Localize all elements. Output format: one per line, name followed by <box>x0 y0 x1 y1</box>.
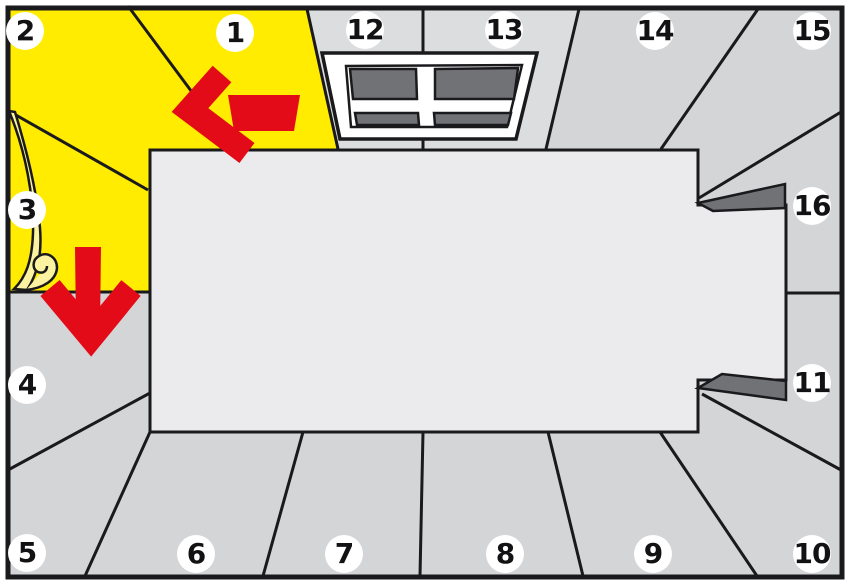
window-pane-top-left <box>350 69 417 99</box>
strip-badge-9: 9 <box>634 535 672 573</box>
strip-badge-7: 7 <box>325 535 363 573</box>
strip-badge-10: 10 <box>793 535 831 573</box>
strip-badge-1: 1 <box>216 14 254 52</box>
strip-badge-5: 5 <box>8 534 46 572</box>
wallpapering-sequence-diagram: 1 2 3 4 5 6 7 8 9 10 11 12 13 14 15 16 <box>0 0 850 585</box>
strip-badge-15: 15 <box>793 12 831 50</box>
strip-badge-11: 11 <box>793 364 831 402</box>
room-plan <box>0 0 850 585</box>
window-icon <box>322 53 537 139</box>
strip-badge-4: 4 <box>8 366 46 404</box>
strip-badge-12: 12 <box>346 11 384 49</box>
window-pane-top-right <box>435 68 518 99</box>
strip-badge-3: 3 <box>8 191 46 229</box>
window-pane-bottom-left <box>355 113 419 125</box>
window-pane-bottom-right <box>434 113 511 125</box>
strip-badge-14: 14 <box>636 12 674 50</box>
floor-area <box>150 150 786 432</box>
strip-badge-6: 6 <box>177 535 215 573</box>
strip-badge-13: 13 <box>485 11 523 49</box>
strip-badge-8: 8 <box>486 535 524 573</box>
strip-badge-2: 2 <box>6 12 44 50</box>
arrow-left-shaft <box>228 95 300 131</box>
strip-badge-16: 16 <box>793 187 831 225</box>
arrow-down-shaft <box>75 247 101 328</box>
